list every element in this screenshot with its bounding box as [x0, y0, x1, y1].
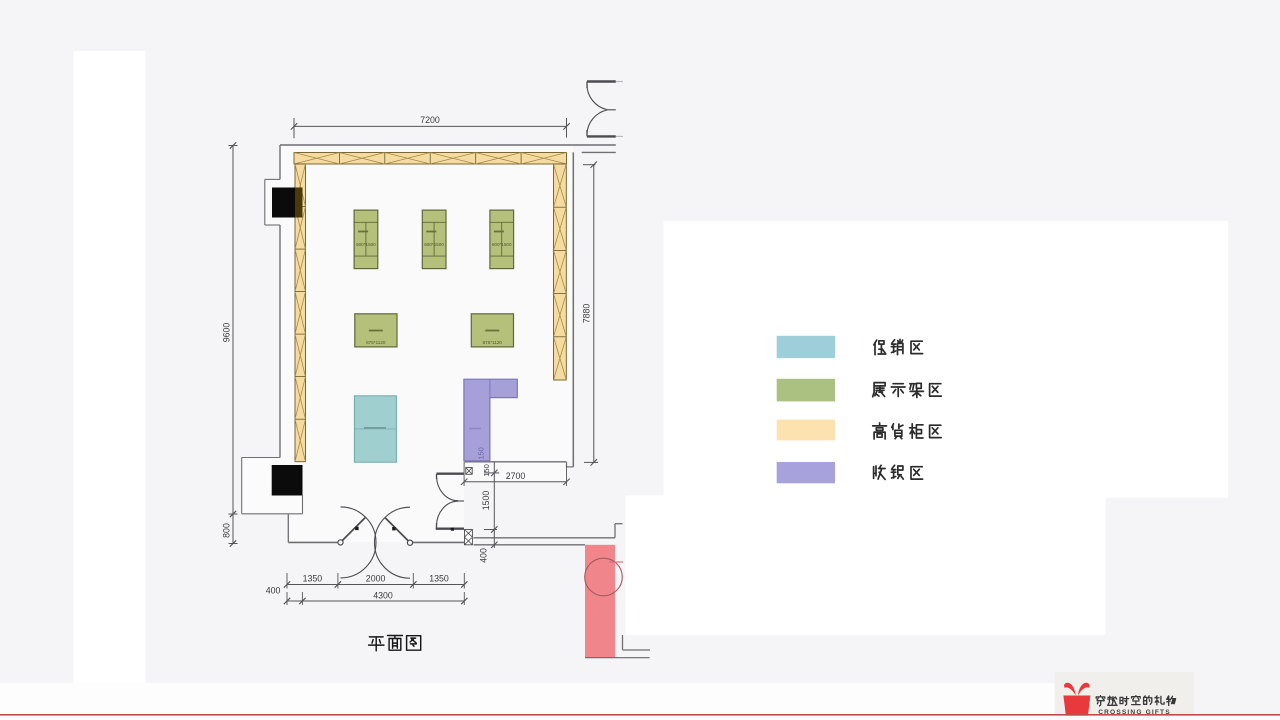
svg-text:150: 150 — [482, 464, 491, 477]
svg-text:875*1120: 875*1120 — [483, 340, 503, 345]
svg-text:400: 400 — [266, 586, 281, 596]
svg-text:4300: 4300 — [373, 590, 393, 600]
svg-text:600*1500: 600*1500 — [424, 242, 444, 247]
svg-text:400: 400 — [479, 548, 489, 563]
svg-text:1350: 1350 — [429, 574, 449, 584]
svg-text:600*1500: 600*1500 — [356, 242, 376, 247]
svg-text:7880: 7880 — [582, 304, 592, 324]
svg-text:2700: 2700 — [506, 471, 526, 481]
svg-text:800: 800 — [222, 523, 232, 538]
svg-text:150: 150 — [477, 447, 486, 460]
svg-text:7200: 7200 — [420, 115, 440, 125]
svg-text:2000: 2000 — [366, 574, 386, 584]
svg-text:875*1120: 875*1120 — [366, 340, 386, 345]
svg-text:1350: 1350 — [303, 574, 323, 584]
svg-text:9600: 9600 — [222, 323, 232, 343]
svg-text:1500: 1500 — [481, 491, 491, 511]
svg-text:600*1500: 600*1500 — [492, 242, 512, 247]
